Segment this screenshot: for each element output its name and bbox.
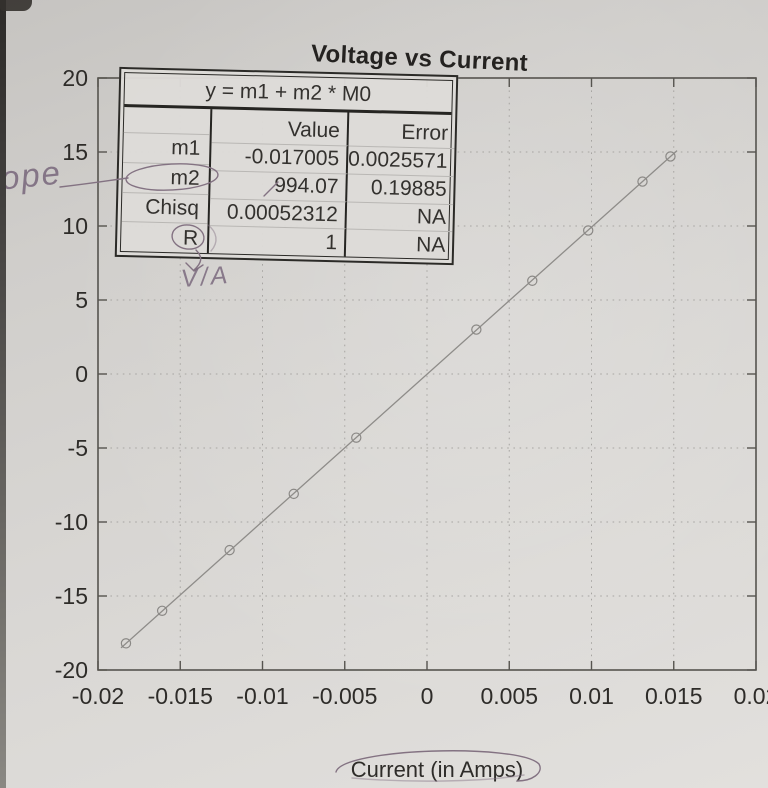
x-tick-label: -0.015 bbox=[148, 683, 213, 709]
handwritten-unit-note: V/A bbox=[180, 261, 232, 294]
y-tick-label: -15 bbox=[55, 583, 88, 609]
y-tick-label: -20 bbox=[55, 657, 88, 683]
x-tick-label: -0.01 bbox=[236, 683, 288, 709]
fit-m1-value: -0.017005 bbox=[211, 142, 349, 173]
fit-row-label-chisq: Chisq bbox=[122, 191, 209, 223]
x-tick-label: -0.005 bbox=[312, 683, 377, 709]
fit-r-value: 1 bbox=[209, 225, 347, 256]
fit-table-label-column: m1 m2 Chisq R bbox=[121, 107, 212, 253]
fit-m2-value: 994.07 bbox=[210, 170, 348, 201]
x-tick-label: 0.02 bbox=[734, 683, 768, 709]
fit-table-inner-border: y = m1 + m2 * M0 m1 m2 Chisq R Value Err… bbox=[120, 72, 453, 260]
fit-table-value-columns: Value Error -0.017005 0.0025571 994.07 0… bbox=[209, 109, 451, 259]
photo-left-edge bbox=[0, 0, 6, 788]
y-tick-label: -10 bbox=[55, 509, 88, 535]
fit-r-error: NA bbox=[346, 229, 453, 259]
y-tick-label: 10 bbox=[62, 213, 88, 239]
fit-row-label-m1: m1 bbox=[123, 132, 210, 164]
x-tick-label: -0.02 bbox=[72, 683, 124, 709]
x-tick-label: 0.015 bbox=[645, 683, 703, 709]
fit-row-label-m2: m2 bbox=[122, 162, 209, 194]
y-tick-label: -5 bbox=[68, 435, 88, 461]
x-tick-label: 0.005 bbox=[480, 683, 538, 709]
photo-corner-shade bbox=[0, 0, 32, 11]
y-tick-label: 5 bbox=[75, 287, 88, 313]
x-tick-label: 0.01 bbox=[569, 683, 614, 709]
fit-m1-error: 0.0025571 bbox=[348, 146, 455, 176]
x-tick-label: 0 bbox=[421, 683, 434, 709]
value-column-header: Value bbox=[212, 109, 350, 145]
y-tick-label: 15 bbox=[62, 139, 88, 165]
fit-m2-error: 0.19885 bbox=[347, 173, 454, 203]
fit-chisq-error: NA bbox=[346, 201, 453, 231]
y-tick-label: 20 bbox=[62, 65, 88, 91]
error-column-header: Error bbox=[349, 113, 456, 149]
y-tick-label: 0 bbox=[75, 361, 88, 387]
fit-chisq-value: 0.00052312 bbox=[210, 198, 348, 229]
fit-table: y = m1 + m2 * M0 m1 m2 Chisq R Value Err… bbox=[115, 67, 459, 265]
fit-row-label-r: R bbox=[121, 221, 208, 253]
x-axis-label: Current (in Amps) bbox=[337, 757, 537, 783]
